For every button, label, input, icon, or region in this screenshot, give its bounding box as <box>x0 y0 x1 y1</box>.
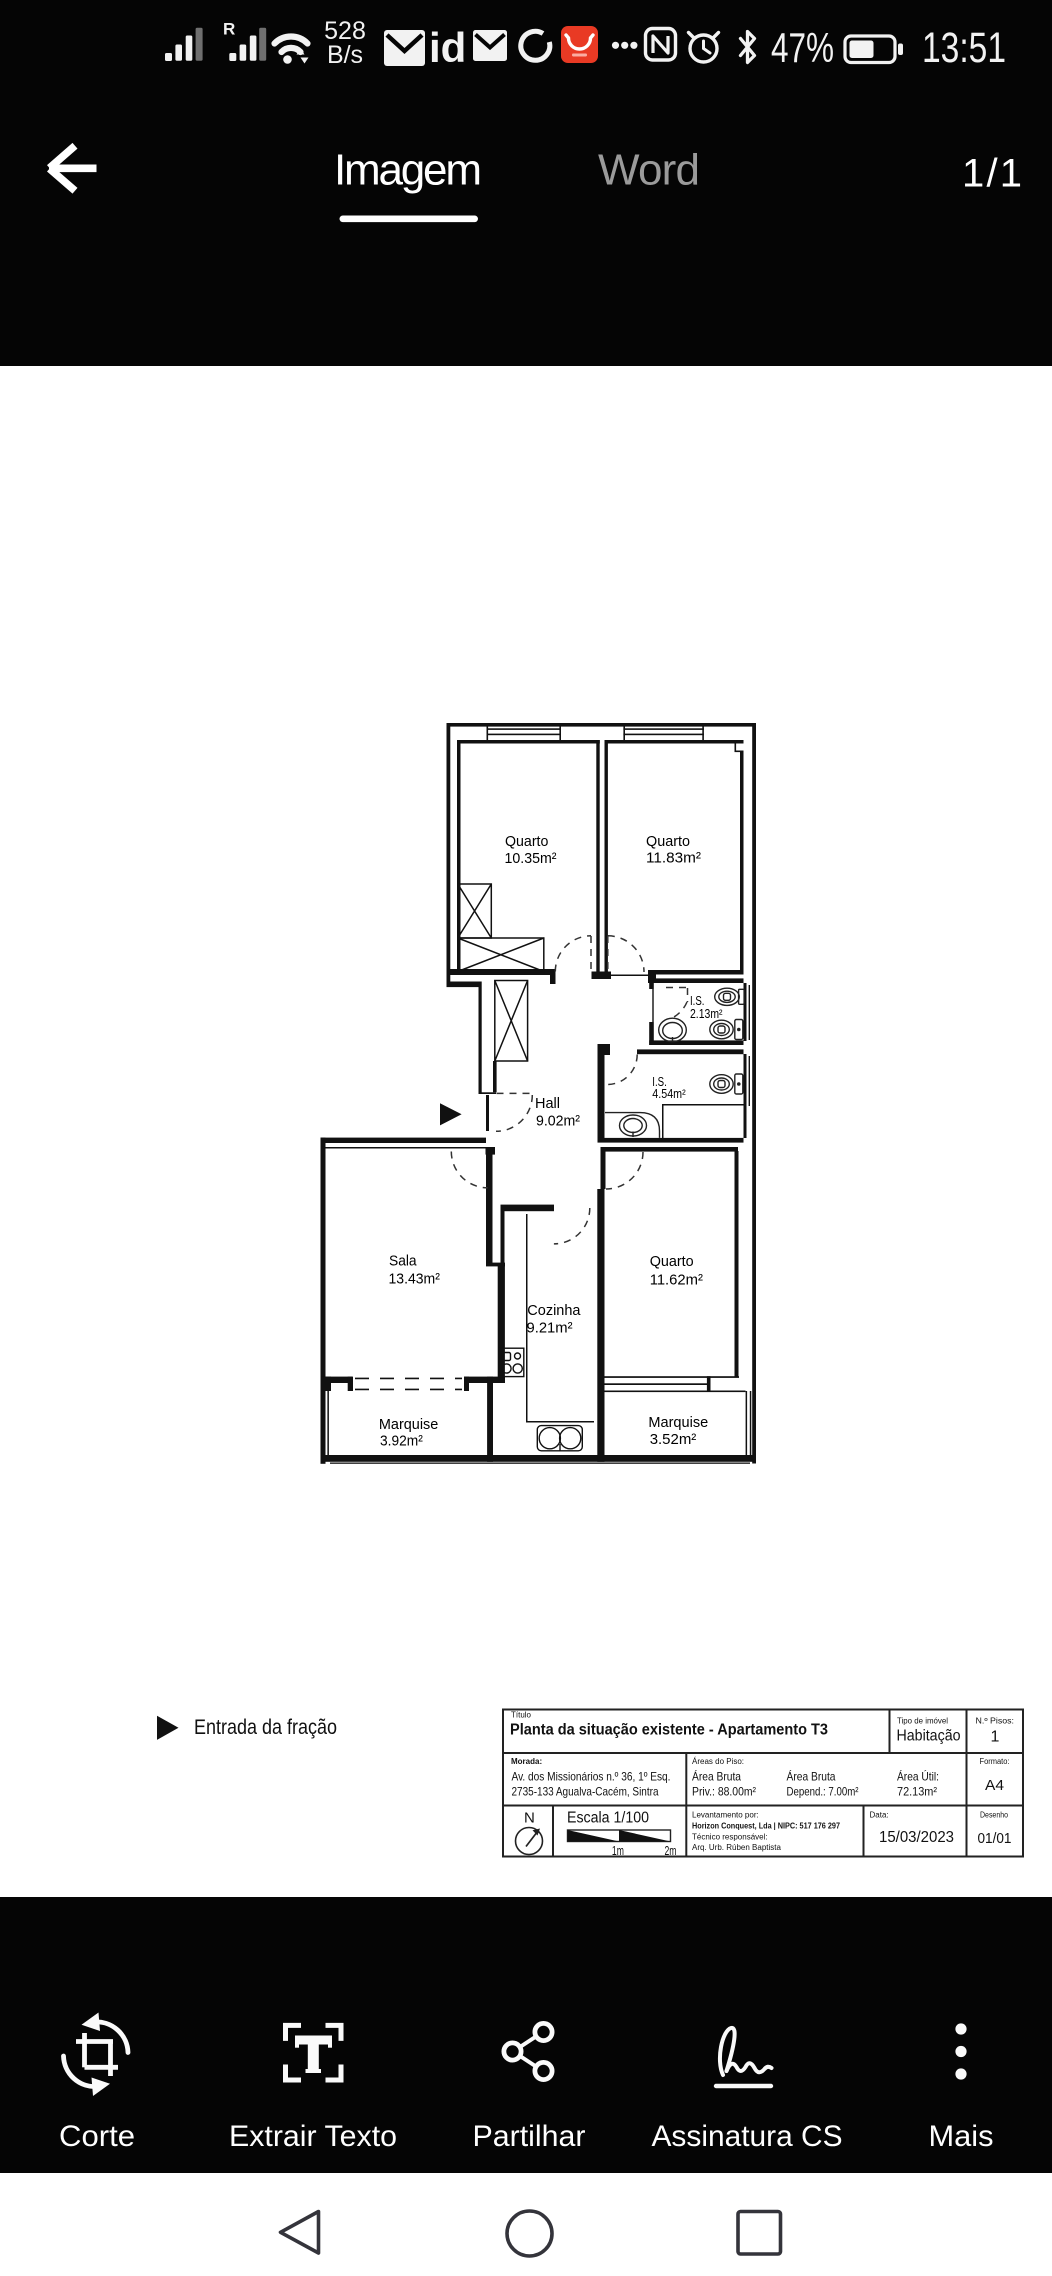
svg-text:B/s: B/s <box>327 41 363 69</box>
svg-text:Título: Título <box>511 1711 532 1720</box>
svg-text:11.83m²: 11.83m² <box>646 850 701 867</box>
svg-text:Levantamento por:: Levantamento por: <box>692 1811 759 1820</box>
svg-text:N.º Pisos:: N.º Pisos: <box>976 1717 1015 1726</box>
svg-text:1/1: 1/1 <box>962 152 1022 196</box>
svg-text:72.13m²: 72.13m² <box>897 1785 937 1799</box>
svg-text:15/03/2023: 15/03/2023 <box>879 1829 954 1846</box>
svg-text:Morada:: Morada: <box>511 1757 542 1766</box>
svg-text:Desenho: Desenho <box>980 1811 1008 1820</box>
svg-text:Assinatura CS: Assinatura CS <box>652 2120 843 2153</box>
svg-text:Hall: Hall <box>535 1095 560 1112</box>
svg-text:Marquise: Marquise <box>379 1416 438 1433</box>
svg-text:2m: 2m <box>665 1844 677 1858</box>
svg-text:13.43m²: 13.43m² <box>389 1270 440 1287</box>
svg-text:Área Bruta: Área Bruta <box>692 1769 741 1784</box>
svg-text:2735-133 Agualva-Cacém, Sintra: 2735-133 Agualva-Cacém, Sintra <box>512 1785 659 1799</box>
svg-text:9.02m²: 9.02m² <box>536 1112 580 1129</box>
svg-text:4.54m²: 4.54m² <box>652 1086 686 1101</box>
svg-text:Sala: Sala <box>389 1253 417 1270</box>
svg-text:A4: A4 <box>985 1777 1004 1794</box>
svg-text:Quarto: Quarto <box>650 1253 694 1270</box>
svg-text:Imagem: Imagem <box>334 146 482 195</box>
svg-text:Área Útil:: Área Útil: <box>897 1769 939 1784</box>
svg-text:Priv.: 88.00m²: Priv.: 88.00m² <box>692 1785 756 1799</box>
svg-text:3.52m²: 3.52m² <box>650 1431 697 1448</box>
svg-text:3.92m²: 3.92m² <box>380 1433 423 1450</box>
svg-text:Data:: Data: <box>870 1811 889 1820</box>
svg-text:Entrada da fração: Entrada da fração <box>194 1716 337 1739</box>
svg-text:01/01: 01/01 <box>978 1831 1012 1847</box>
svg-text:Quarto: Quarto <box>646 833 690 850</box>
svg-text:Horizon Conquest, Lda | NIPC:: Horizon Conquest, Lda | NIPC: 517 176 29… <box>692 1822 840 1831</box>
svg-text:Cozinha: Cozinha <box>527 1302 581 1319</box>
svg-text:2.13m²: 2.13m² <box>690 1006 723 1021</box>
svg-text:9.21m²: 9.21m² <box>527 1319 573 1336</box>
svg-text:Arq. Urb. Rúben Baptista: Arq. Urb. Rúben Baptista <box>692 1843 781 1852</box>
svg-text:Partilhar: Partilhar <box>473 2120 586 2153</box>
svg-text:Extrair Texto: Extrair Texto <box>229 2120 397 2153</box>
svg-text:Planta da situação existente -: Planta da situação existente - Apartamen… <box>510 1722 828 1739</box>
svg-text:1: 1 <box>991 1728 1000 1745</box>
svg-text:Mais: Mais <box>929 2120 994 2153</box>
svg-text:13:51: 13:51 <box>922 24 1006 72</box>
svg-text:Escala 1/100: Escala 1/100 <box>567 1809 649 1826</box>
svg-text:Word: Word <box>598 146 700 195</box>
svg-text:R: R <box>223 20 235 39</box>
svg-text:Corte: Corte <box>59 2120 135 2153</box>
svg-text:Técnico responsável:: Técnico responsável: <box>692 1833 768 1842</box>
svg-text:1m: 1m <box>612 1844 624 1858</box>
svg-text:Quarto: Quarto <box>505 833 548 850</box>
svg-text:Formato:: Formato: <box>980 1757 1010 1766</box>
svg-text:47%: 47% <box>771 24 834 71</box>
svg-text:11.62m²: 11.62m² <box>650 1271 703 1288</box>
svg-text:Av. dos Missionários n.º 36, 1: Av. dos Missionários n.º 36, 1º Esq. <box>512 1770 671 1784</box>
svg-text:N: N <box>524 1809 535 1826</box>
svg-text:Áreas do Piso:: Áreas do Piso: <box>692 1757 744 1766</box>
svg-text:id: id <box>429 24 466 71</box>
svg-text:10.35m²: 10.35m² <box>505 850 557 867</box>
svg-text:Depend.: 7.00m²: Depend.: 7.00m² <box>787 1785 859 1799</box>
svg-text:Área Bruta: Área Bruta <box>787 1769 836 1784</box>
svg-text:Marquise: Marquise <box>648 1414 708 1431</box>
svg-text:Habitação: Habitação <box>897 1728 961 1745</box>
svg-text:Tipo de imóvel: Tipo de imóvel <box>897 1717 948 1726</box>
